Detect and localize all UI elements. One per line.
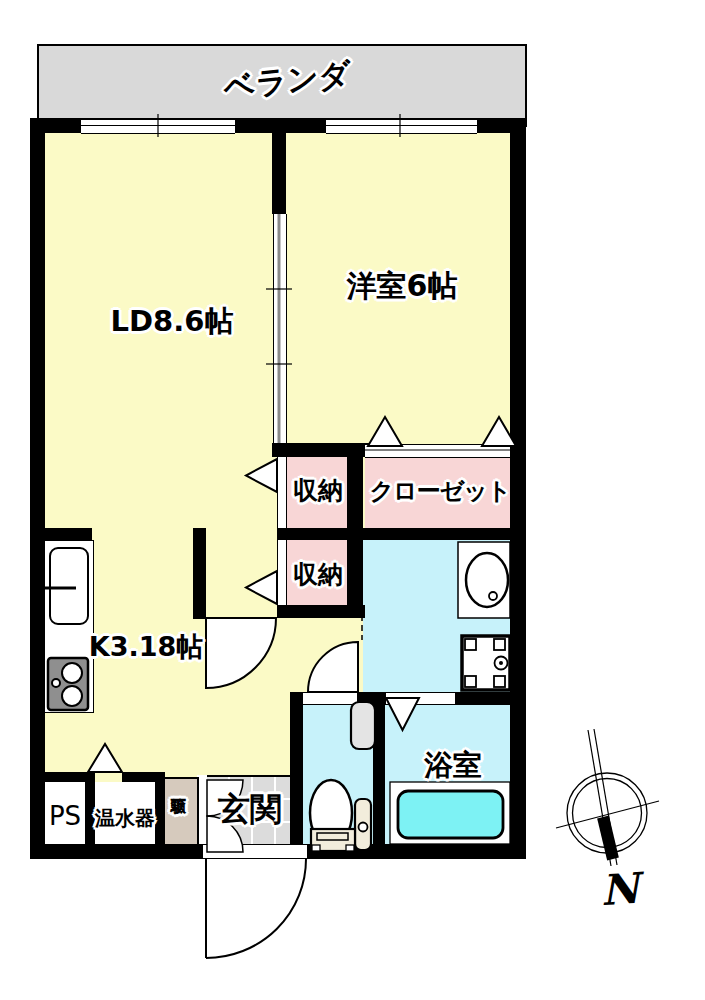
closet-door-right-icon bbox=[482, 417, 516, 446]
hand-wash-tank bbox=[351, 702, 375, 749]
living-dining-label: LD8.6帖 bbox=[92, 306, 252, 336]
floor-plan: ベランダ LD8.6帖 洋室6帖 収納 クローゼット 収納 K3.18帖 PS … bbox=[0, 0, 705, 1000]
storage-upper-label: 収納 bbox=[286, 478, 350, 504]
bathtub bbox=[390, 782, 510, 844]
toilet-door-swing-icon bbox=[308, 642, 358, 692]
door-triangle-icons bbox=[88, 417, 516, 772]
storage-lower-door-icon bbox=[246, 571, 277, 604]
western-room-label: 洋室6帖 bbox=[302, 270, 502, 302]
water-heater-label: 温水器 bbox=[94, 808, 156, 829]
kitchen-label: K3.18帖 bbox=[66, 633, 226, 661]
entrance-door-swing-icon bbox=[206, 859, 306, 958]
compass-icon bbox=[556, 729, 659, 866]
storage-lower-label: 収納 bbox=[286, 562, 350, 588]
kitchen-sink bbox=[45, 548, 88, 624]
bathroom-door-icon bbox=[386, 698, 419, 730]
pipe-space-label: PS bbox=[44, 803, 86, 830]
sliding-door-icon bbox=[266, 214, 292, 443]
water-heater-door-icon bbox=[88, 744, 122, 772]
toilet bbox=[310, 780, 371, 851]
compass-north-label: N bbox=[594, 866, 647, 913]
plan-details bbox=[0, 0, 705, 1000]
gas-stove bbox=[48, 658, 88, 710]
closet-label: クローゼット bbox=[368, 479, 512, 504]
closet-door-left-icon bbox=[368, 417, 402, 446]
washing-machine-pan bbox=[462, 636, 510, 690]
wash-basin bbox=[458, 542, 510, 618]
bathroom-label: 浴室 bbox=[408, 750, 498, 780]
entrance-label: 玄関 bbox=[215, 793, 285, 827]
storage-upper-door-icon bbox=[246, 459, 277, 492]
